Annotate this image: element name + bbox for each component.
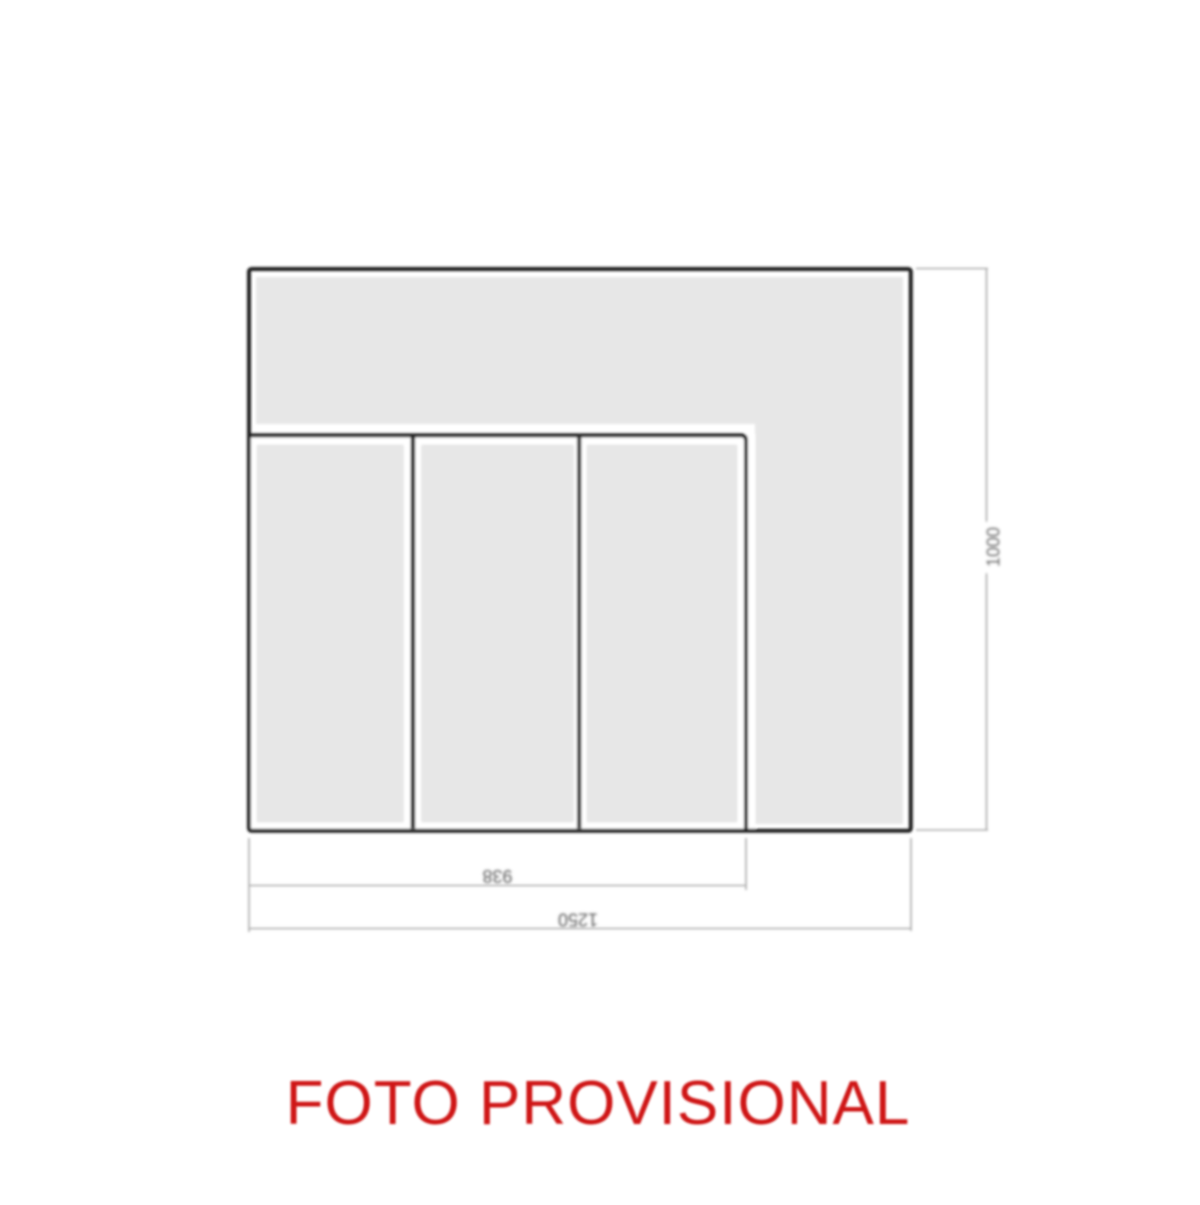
svg-text:1250: 1250 xyxy=(558,910,598,930)
svg-text:938: 938 xyxy=(482,866,512,886)
svg-text:1000: 1000 xyxy=(984,527,1004,567)
svg-text:FOTO PROVISIONAL: FOTO PROVISIONAL xyxy=(286,1069,911,1138)
